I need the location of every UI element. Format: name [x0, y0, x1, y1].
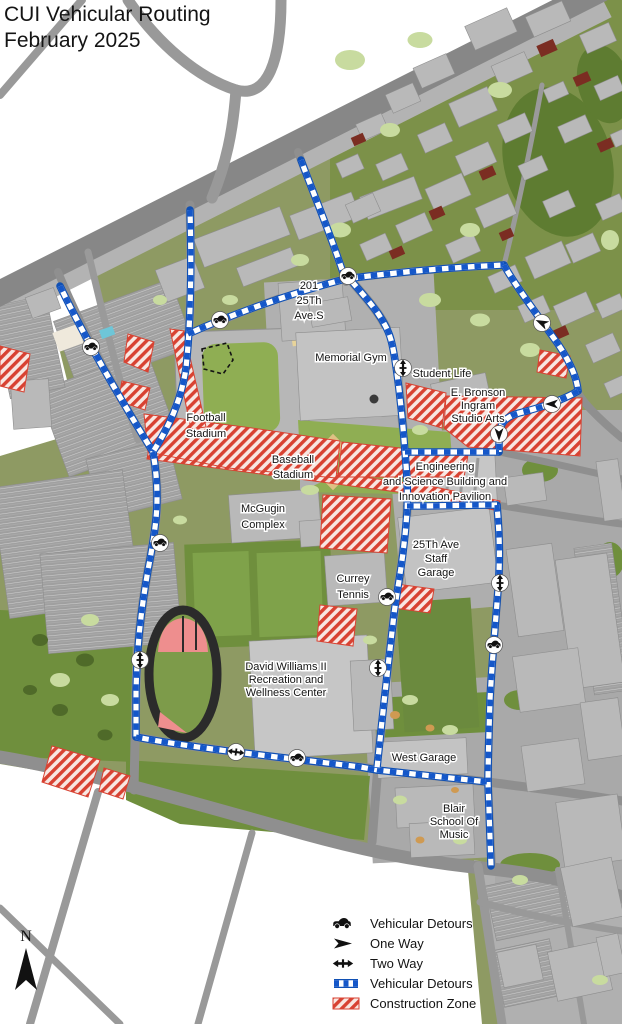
- page-title: CUI Vehicular Routing February 2025: [4, 2, 211, 55]
- tree-cluster: [470, 314, 490, 327]
- tree-cluster: [402, 695, 418, 705]
- construction-zone: [320, 495, 391, 553]
- two-way-arrow-icon: [492, 575, 509, 592]
- two-way-arrow-icon: [370, 660, 387, 677]
- tree-cluster: [460, 223, 480, 237]
- north-compass: N: [8, 928, 44, 997]
- legend-label: Vehicular Detours: [370, 916, 473, 931]
- legend-label: Two Way: [370, 956, 423, 971]
- legend-label: Construction Zone: [370, 996, 476, 1011]
- tree: [23, 685, 37, 695]
- tree-cluster: [291, 254, 309, 266]
- tree-cluster: [408, 32, 433, 48]
- tree-cluster: [412, 425, 428, 435]
- car-detour-icon: [332, 916, 362, 931]
- title-line-1: CUI Vehicular Routing: [4, 2, 211, 28]
- compass-n-label: N: [8, 928, 44, 946]
- one-way-arrow-icon: [544, 396, 561, 413]
- tree-cluster: [335, 50, 365, 70]
- tree-cluster: [512, 875, 528, 885]
- tree-cluster: [419, 293, 441, 307]
- route-line-icon: [332, 976, 362, 991]
- vehicular-detour-car-icon: [289, 750, 306, 767]
- tree: [76, 654, 94, 667]
- title-line-2: February 2025: [4, 28, 211, 54]
- vehicular-detour-car-icon: [212, 312, 229, 329]
- tree-autumn: [416, 837, 425, 844]
- two-way-arrow-icon: [132, 652, 149, 669]
- tree-cluster: [81, 614, 99, 626]
- two-way-arrow-icon: [227, 744, 245, 761]
- tree-cluster: [173, 516, 187, 525]
- building: [497, 944, 544, 988]
- legend-item-1: One Way: [332, 936, 476, 951]
- tree-cluster: [50, 673, 70, 687]
- vehicular-detour-car-icon: [340, 268, 357, 285]
- tree-cluster: [380, 123, 400, 137]
- building: [556, 794, 622, 868]
- legend-item-3: Vehicular Detours: [332, 976, 476, 991]
- one-way-arrow-icon: [491, 426, 508, 443]
- tree-cluster: [393, 796, 407, 805]
- one-way-arrow-icon: [534, 315, 551, 332]
- legend-label: One Way: [370, 936, 424, 951]
- tree-autumn: [390, 711, 400, 719]
- building: [521, 738, 585, 792]
- tree-cluster: [363, 636, 377, 645]
- tree-autumn: [426, 725, 435, 732]
- building: [503, 472, 547, 505]
- tree-cluster: [601, 230, 619, 250]
- tree-cluster: [301, 485, 319, 495]
- tree-cluster: [101, 694, 119, 706]
- tree-cluster: [488, 82, 512, 98]
- two-way-arrow-icon: [395, 360, 412, 377]
- vehicular-detour-car-icon: [486, 637, 503, 654]
- tree-autumn: [451, 787, 459, 793]
- legend-item-0: Vehicular Detours: [332, 916, 476, 931]
- tree: [52, 704, 68, 716]
- map-label-student-life: Student Life: [413, 368, 472, 380]
- tree-cluster: [442, 725, 458, 735]
- tree: [32, 634, 48, 646]
- building: [512, 648, 585, 713]
- map-label-west-garage: West Garage: [392, 752, 457, 764]
- construction-zone: [317, 605, 357, 646]
- legend-item-4: Construction Zone: [332, 996, 476, 1011]
- vehicular-detour-car-icon: [83, 339, 100, 356]
- tree: [98, 730, 113, 741]
- north-arrow-icon: [8, 946, 44, 992]
- legend-label: Vehicular Detours: [370, 976, 473, 991]
- two-way-icon: [332, 956, 362, 971]
- legend-item-2: Two Way: [332, 956, 476, 971]
- map-label-david-williams: David Williams IIRecreation andWellness …: [245, 661, 326, 699]
- vehicular-detour-car-icon: [379, 589, 396, 606]
- map-label-memorial-gym: Memorial Gym: [315, 352, 387, 364]
- tree-cluster: [592, 975, 608, 985]
- one-way-icon: [332, 936, 362, 951]
- tree-cluster: [520, 343, 540, 357]
- campus-routing-map-page: 20125ThAve.SMemorial GymStudent LifeE. B…: [0, 0, 622, 1024]
- tree-cluster: [153, 295, 167, 305]
- map-legend: Vehicular DetoursOne WayTwo WayVehicular…: [332, 916, 476, 1016]
- construction-zone-icon: [332, 996, 362, 1011]
- construction-zone: [0, 346, 30, 392]
- running-track-shape: [149, 610, 217, 738]
- tree-cluster: [222, 295, 238, 305]
- vehicular-detour-car-icon: [152, 535, 169, 552]
- campus-map: 20125ThAve.SMemorial GymStudent LifeE. B…: [0, 0, 622, 1024]
